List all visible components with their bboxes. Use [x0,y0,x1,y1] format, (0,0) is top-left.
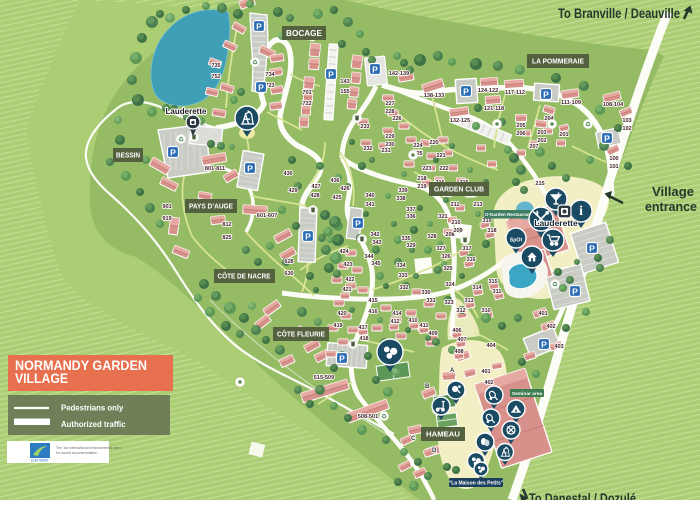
svg-text:121-118: 121-118 [484,106,504,112]
svg-text:207: 207 [529,144,538,150]
svg-text:330: 330 [421,290,430,296]
svg-text:Lauderette: Lauderette [534,218,578,228]
svg-text:417: 417 [358,325,367,331]
svg-text:412: 412 [390,319,399,325]
svg-text:404: 404 [486,343,496,349]
svg-text:408: 408 [454,349,463,355]
svg-text:201: 201 [559,132,568,138]
svg-text:232: 232 [363,146,372,152]
svg-text:P: P [589,244,595,254]
svg-text:108-104: 108-104 [603,102,624,108]
svg-text:223: 223 [422,166,431,172]
svg-text:P: P [339,354,345,364]
svg-text:A: A [450,368,455,374]
svg-text:812: 812 [222,222,231,228]
svg-text:325: 325 [443,266,452,272]
svg-text:335: 335 [401,236,410,242]
svg-text:422: 422 [345,277,354,283]
svg-text:BOCAGE: BOCAGE [286,29,322,38]
svg-text:202: 202 [537,138,546,144]
svg-text:P: P [543,90,549,100]
svg-text:103: 103 [622,118,631,124]
svg-text:219: 219 [417,184,426,190]
svg-text:340: 340 [365,193,374,199]
svg-text:515-509: 515-509 [314,375,335,381]
svg-text:331: 331 [426,298,435,304]
svg-text:227: 227 [385,101,394,107]
svg-text:423: 423 [343,262,352,268]
svg-text:entrance: entrance [645,199,697,214]
svg-text:Authorized traffic: Authorized traffic [61,420,126,429]
svg-text:BESSIN: BESSIN [116,151,140,160]
svg-text:229: 229 [385,134,394,140]
svg-text:415: 415 [368,298,377,304]
svg-text:426: 426 [340,186,349,192]
svg-text:314: 314 [472,285,482,291]
svg-text:345: 345 [371,261,380,267]
svg-text:409: 409 [428,331,437,337]
svg-text:The 1st international environm: The 1st international environmental labe… [56,446,121,450]
svg-text:Seminar area: Seminar area [512,391,542,397]
svg-text:155: 155 [340,89,349,95]
svg-text:337: 337 [406,207,415,213]
svg-text:324: 324 [445,282,455,288]
svg-text:P: P [256,22,262,32]
svg-text:209: 209 [453,228,462,234]
svg-text:420: 420 [337,311,346,317]
svg-text:P: P [328,70,334,80]
svg-text:132-125: 132-125 [450,118,471,124]
svg-text:P: P [604,134,610,144]
svg-text:P: P [305,232,311,242]
svg-text:♻: ♻ [585,121,591,128]
svg-text:117-112: 117-112 [505,90,525,96]
svg-text:P: P [258,83,264,93]
svg-text:628: 628 [284,259,293,265]
svg-text:344: 344 [364,254,374,260]
svg-text:339: 339 [398,188,407,194]
svg-text:206: 206 [516,131,525,137]
svg-text:601-607: 601-607 [257,213,278,219]
svg-text:418: 418 [359,336,368,342]
svg-text:211: 211 [450,202,459,208]
svg-text:218: 218 [417,176,426,182]
svg-text:231: 231 [381,148,390,154]
svg-text:102: 102 [622,126,631,132]
svg-text:GARDEN CLUB: GARDEN CLUB [434,185,484,194]
svg-text:P: P [541,340,547,350]
svg-text:P: P [170,148,176,158]
svg-text:Village: Village [652,184,694,199]
svg-text:215: 215 [535,181,544,187]
svg-text:801-811: 801-811 [205,166,225,172]
svg-text:336: 336 [406,214,415,220]
svg-text:752: 752 [211,74,220,80]
svg-text:508-501: 508-501 [358,414,379,420]
svg-text:319: 319 [482,218,491,224]
svg-text:323: 323 [444,300,453,306]
svg-text:221: 221 [436,153,445,159]
svg-text:CÔTE FLEURIE: CÔTE FLEURIE [277,330,325,339]
svg-text:722: 722 [302,101,311,107]
svg-text:B: B [425,384,430,390]
svg-text:342: 342 [370,232,379,238]
svg-text:224: 224 [413,143,423,149]
svg-text:P: P [355,219,361,229]
svg-text:424: 424 [339,249,349,255]
svg-text:316: 316 [466,257,475,263]
svg-text:327: 327 [436,246,445,252]
svg-text:PAYS D’AUGE: PAYS D’AUGE [189,202,233,211]
svg-text:143: 143 [340,79,349,85]
svg-text:203: 203 [537,130,546,136]
svg-text:315: 315 [488,279,497,285]
svg-text:♻: ♻ [552,281,558,288]
svg-text:233: 233 [360,124,369,130]
svg-text:228: 228 [385,109,394,115]
svg-text:430: 430 [283,171,292,177]
svg-text:328: 328 [427,234,436,240]
svg-text:210: 210 [451,220,460,226]
svg-text:P: P [247,164,253,174]
svg-text:220: 220 [429,140,438,146]
svg-text:734: 734 [265,72,275,78]
svg-text:407: 407 [457,337,466,343]
svg-text:CLEF VERTE: CLEF VERTE [31,459,49,463]
svg-text:P: P [572,287,578,297]
svg-text:427: 427 [311,184,320,190]
svg-text:for tourist accommodation: for tourist accommodation [56,451,97,455]
svg-text:338: 338 [396,196,405,202]
svg-text:429: 429 [288,188,297,194]
svg-text:318: 318 [487,228,496,234]
svg-text:i: i [579,203,583,218]
svg-text:401: 401 [481,369,490,375]
svg-text:341: 341 [365,202,374,208]
svg-text:326: 326 [441,254,450,260]
svg-text:421: 421 [342,287,351,293]
svg-text:P: P [463,87,469,97]
svg-text:901: 901 [162,204,171,210]
svg-text:To Branville / Deauville: To Branville / Deauville [558,6,680,21]
svg-text:111-109: 111-109 [561,100,581,106]
svg-text:416: 416 [368,309,377,315]
svg-text:222: 222 [439,166,448,172]
svg-text:317: 317 [462,246,471,252]
svg-text:310: 310 [481,308,490,314]
svg-text:VILLAGE: VILLAGE [15,370,68,386]
svg-text:436: 436 [330,178,339,184]
svg-text:825: 825 [222,235,231,241]
svg-text:329: 329 [406,243,415,249]
svg-text:419: 419 [333,323,342,329]
svg-text:401: 401 [538,311,547,317]
svg-text:Pedestrians only: Pedestrians only [61,404,124,413]
svg-text:♻: ♻ [381,413,387,420]
svg-text:332: 332 [399,285,408,291]
svg-text:313: 313 [464,298,473,304]
svg-text:414: 414 [392,311,402,317]
svg-text:343: 343 [372,240,381,246]
svg-text:124-122: 124-122 [478,88,499,94]
svg-text:O’Garden Restaurant: O’Garden Restaurant [485,212,532,217]
svg-text:410: 410 [408,318,417,324]
svg-text:428: 428 [310,193,319,199]
svg-text:205: 205 [516,123,525,129]
svg-text:P: P [372,65,378,75]
svg-text:♻: ♻ [252,59,258,66]
svg-text:101: 101 [609,164,618,170]
svg-text:425: 425 [332,195,341,201]
svg-text:LA POMMERAIE: LA POMMERAIE [532,57,584,66]
svg-text:311: 311 [492,289,501,295]
svg-text:334: 334 [396,263,406,269]
svg-text:HAMEAU: HAMEAU [426,430,461,439]
svg-text:321: 321 [438,214,447,220]
svg-text:138-133: 138-133 [424,93,445,99]
svg-text:C: C [411,436,416,442]
svg-text:630: 630 [284,271,293,277]
svg-text:CÔTE DE NACRE: CÔTE DE NACRE [218,272,271,281]
svg-text:333: 333 [398,273,407,279]
svg-text:402: 402 [484,380,493,386]
svg-text:SpOt: SpOt [510,237,523,243]
svg-text:D: D [432,448,437,454]
svg-text:403: 403 [554,344,563,350]
svg-text:To Danestal / Dozulé: To Danestal / Dozulé [529,491,636,500]
svg-text:♻: ♻ [178,136,184,143]
svg-text:919: 919 [162,216,171,222]
svg-text:226: 226 [392,116,401,122]
svg-text:402: 402 [546,324,555,330]
svg-text:406: 406 [452,328,461,334]
svg-text:411: 411 [419,323,428,329]
svg-text:“La Maison des Petits”: “La Maison des Petits” [449,481,504,487]
svg-text:312: 312 [456,308,465,314]
svg-text:701: 701 [302,90,311,96]
svg-text:142-139: 142-139 [389,71,410,77]
svg-text:100: 100 [609,156,618,162]
svg-text:213: 213 [473,202,482,208]
svg-text:Lauderette: Lauderette [166,107,207,116]
svg-text:735: 735 [211,63,220,69]
